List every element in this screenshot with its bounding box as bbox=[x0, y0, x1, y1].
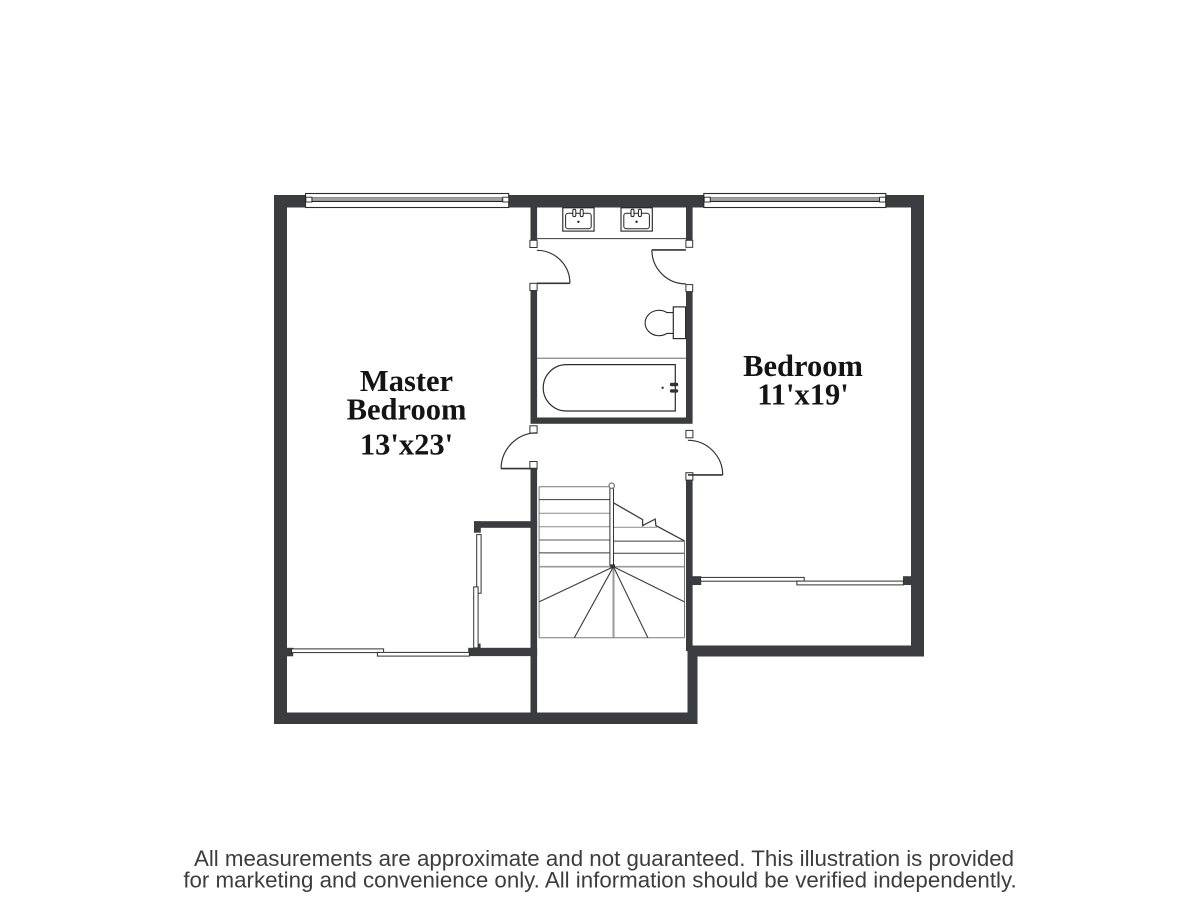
svg-text:for marketing and convenience: for marketing and convenience only. All … bbox=[183, 867, 1016, 892]
svg-text:11'x19': 11'x19' bbox=[757, 378, 849, 412]
svg-text:Bedroom: Bedroom bbox=[347, 393, 467, 427]
svg-text:13'x23': 13'x23' bbox=[360, 428, 453, 462]
